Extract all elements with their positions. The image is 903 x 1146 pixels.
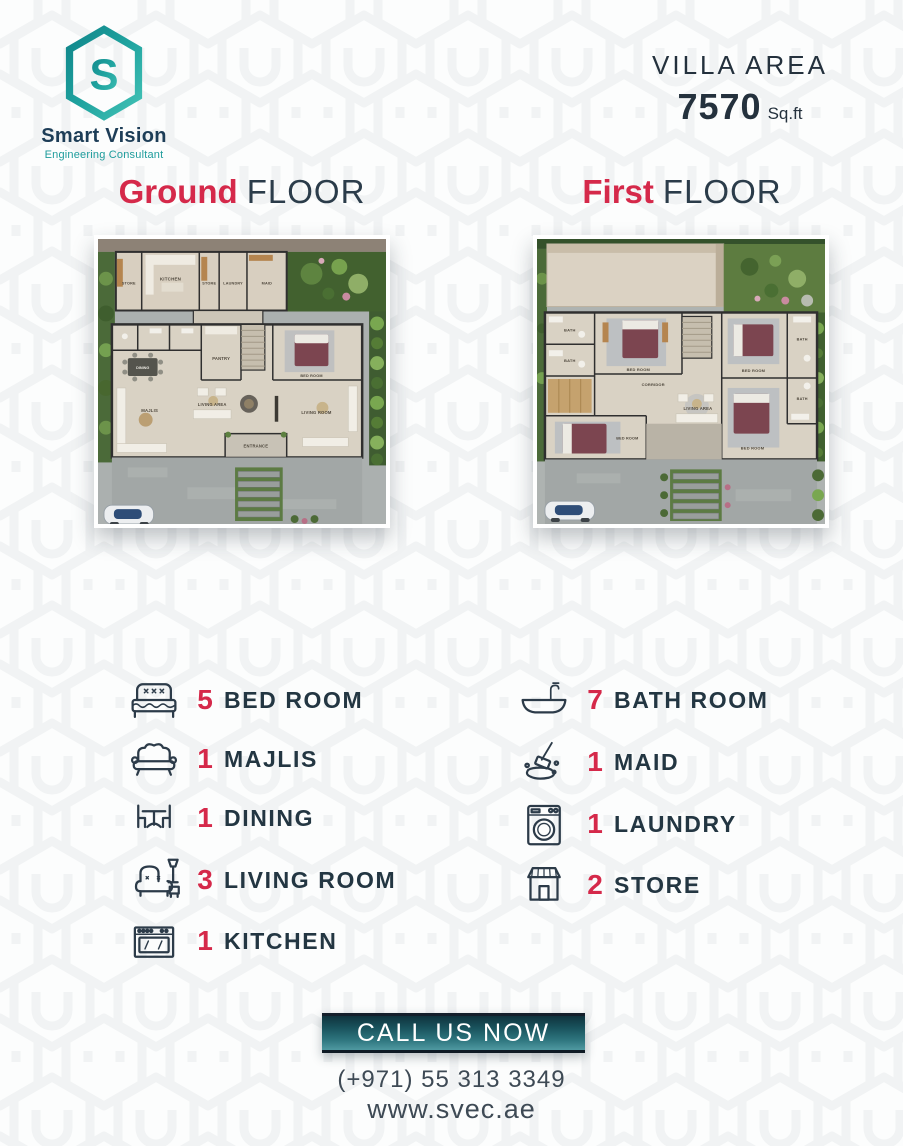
room-label-laundry: LAUNDRY — [223, 282, 243, 286]
car-illustration — [545, 501, 595, 522]
room-label-bed-right-top: BED ROOM — [742, 368, 766, 373]
feature-count: 1 — [196, 802, 214, 834]
dining-icon — [124, 791, 184, 845]
first-title-rest: FLOOR — [663, 173, 782, 211]
villa-area-label: VILLA AREA — [610, 50, 870, 81]
feature-bed-room: 5 BED ROOM — [124, 671, 363, 729]
villa-area-unit: Sq.ft — [768, 104, 803, 123]
room-label-majlis: MAJLIS — [141, 408, 158, 413]
feature-laundry: 1 LAUNDRY — [514, 795, 737, 853]
feature-label: KITCHEN — [224, 928, 337, 955]
room-label-pantry: PANTRY — [212, 356, 230, 361]
armchair-icon — [124, 853, 184, 907]
room-label-bath-b: BATH — [564, 358, 576, 363]
feature-dining: 1 DINING — [124, 789, 314, 847]
car-illustration — [104, 505, 154, 524]
hexagon-s-logo-icon: S — [58, 24, 150, 122]
feature-kitchen: 1 KITCHEN — [124, 912, 337, 970]
feature-count: 1 — [586, 746, 604, 778]
feature-count: 2 — [586, 869, 604, 901]
room-label-kitchen: KITCHEN — [160, 277, 181, 282]
room-label-bed-master: BED ROOM — [616, 437, 638, 441]
room-label-maid: MAID — [262, 282, 272, 286]
room-label-living-area: LIVING AREA — [198, 402, 227, 407]
feature-label: MAID — [614, 749, 679, 776]
bathtub-icon — [514, 673, 574, 727]
feature-bath-room: 7 BATH ROOM — [514, 671, 769, 729]
room-label-living-area-f: LIVING AREA — [683, 406, 712, 411]
brand-tagline: Engineering Consultant — [38, 149, 170, 161]
feature-majlis: 1 MAJLIS — [124, 730, 318, 788]
phone-number[interactable]: (+971) 55 313 3349 — [0, 1066, 903, 1094]
call-us-now-button[interactable]: CALL US NOW — [322, 1013, 585, 1053]
feature-label: LAUNDRY — [614, 811, 737, 838]
room-label-store-b: STORE — [202, 282, 216, 286]
room-label-entrance: ENTRANCE — [244, 444, 269, 449]
first-floor-plan: BATH BATH BED ROOM CORRIDOR LIVING AREA — [533, 235, 829, 528]
villa-area-block: VILLA AREA 7570Sq.ft — [610, 50, 870, 128]
feature-label: LIVING ROOM — [224, 867, 396, 894]
room-label-bed-right-bottom: BED ROOM — [741, 446, 765, 451]
feature-living-room: 3 LIVING ROOM — [124, 851, 396, 909]
room-label-corridor: CORRIDOR — [642, 382, 665, 387]
room-label-dining: DINING — [136, 366, 149, 370]
feature-label: DINING — [224, 805, 314, 832]
bed-icon — [124, 673, 184, 727]
feature-store: 2 STORE — [514, 856, 701, 914]
shop-icon — [514, 858, 574, 912]
feature-count: 1 — [196, 925, 214, 957]
room-label-bath-d: BATH — [797, 397, 808, 401]
first-floor-title: First FLOOR — [537, 170, 827, 214]
feature-count: 1 — [586, 808, 604, 840]
room-label-living-room: LIVING ROOM — [301, 410, 331, 415]
brand-name: Smart Vision — [38, 125, 170, 148]
feature-label: MAJLIS — [224, 746, 318, 773]
feature-label: BED ROOM — [224, 687, 363, 714]
room-label-store-a: STORE — [122, 282, 136, 286]
washer-icon — [514, 797, 574, 851]
logo-letter: S — [89, 51, 118, 99]
cleaning-icon — [514, 735, 574, 789]
room-label-bed-top: BED ROOM — [627, 367, 651, 372]
feature-maid: 1 MAID — [514, 733, 679, 791]
feature-label: BATH ROOM — [614, 687, 769, 714]
ground-floor-plan: STORE KITCHEN STORE LAUNDRY MAID PANTRY … — [94, 235, 390, 528]
sofa-icon — [124, 732, 184, 786]
room-label-bed-room: BED ROOM — [300, 374, 322, 378]
feature-count: 5 — [196, 684, 214, 716]
brand-logo: S Smart Vision Engineering Consultant — [38, 24, 170, 161]
room-label-bath-c: BATH — [797, 337, 808, 341]
stove-icon — [124, 914, 184, 968]
ground-title-rest: FLOOR — [247, 173, 366, 211]
room-label-bath-a: BATH — [564, 327, 576, 332]
ground-floor-title: Ground FLOOR — [97, 170, 387, 214]
feature-count: 3 — [196, 864, 214, 896]
feature-label: STORE — [614, 872, 701, 899]
ground-title-highlight: Ground — [119, 173, 238, 211]
first-title-highlight: First — [582, 173, 654, 211]
feature-count: 1 — [196, 743, 214, 775]
villa-area-value: 7570 — [677, 86, 761, 127]
website-url[interactable]: www.svec.ae — [0, 1094, 903, 1125]
feature-count: 7 — [586, 684, 604, 716]
flyer-canvas: S Smart Vision Engineering Consultant VI… — [0, 0, 903, 1146]
